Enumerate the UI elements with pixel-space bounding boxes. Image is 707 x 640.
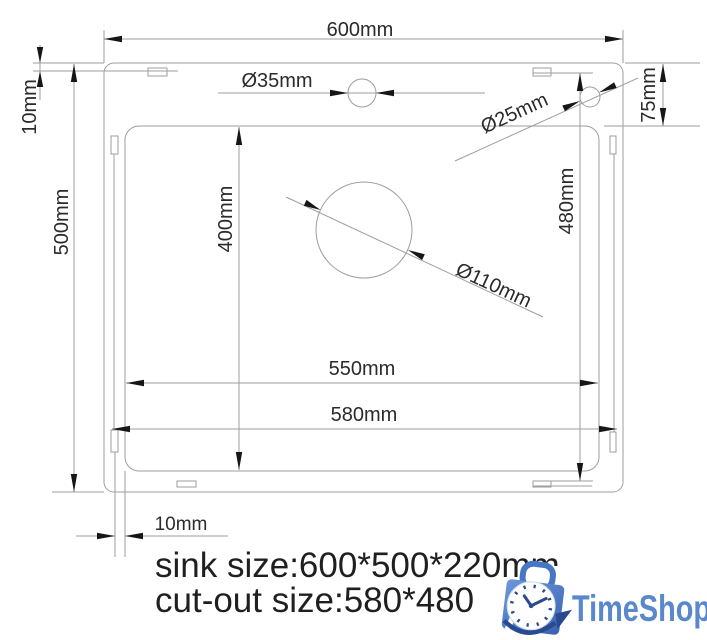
arrowhead-down [577,463,583,481]
arrowhead-left [125,533,143,539]
sink-size-note: sink size:600*500*220mm [155,546,560,585]
dim-width-600: 600mm [104,19,623,63]
arrowhead-left [376,90,394,96]
dimension-line [533,73,593,481]
dim-height-500-label: 500mm [51,189,73,256]
clip-tab-right-lower [610,432,616,452]
dim-width-600-label: 600mm [327,19,394,41]
arrowhead-down [660,108,666,126]
dim-bowl-400-label: 400mm [215,186,237,253]
dim-flange-bottom-10: 10mm [76,452,228,557]
arrowhead-up [660,64,666,82]
arrowhead-downleft [599,82,617,92]
brand-name: TimeShop [572,589,707,630]
drawing-svg: 600mm 10mm 500mm 400mm Ø35mm Ø25mm 75mm [0,0,707,640]
sink-technical-drawing: 600mm 10mm 500mm 400mm Ø35mm Ø25mm 75mm [0,0,707,640]
dim-cutout-580-label: 580mm [331,404,398,426]
clip-tab-bottom-left [177,481,196,487]
cutout-size-note: cut-out size:580*480 [155,581,474,620]
dim-flange-top-10-label: 10mm [19,79,41,135]
dim-accessory-hole-25-label: Ø25mm [478,89,552,139]
dim-bowl-550-label: 550mm [329,358,396,380]
arrowhead-left [104,36,122,42]
dim-drain-110-label: Ø110mm [452,259,535,313]
dim-bowl-400: 400mm [215,127,242,470]
dim-flange-top-10: 10mm [19,45,178,135]
arrowhead-right [97,533,115,539]
timeshop-logo: TimeShop [501,561,707,640]
dim-cutout-580: 580mm [112,404,617,432]
dim-offset-75: 75mm [604,63,700,126]
dimension-line [52,64,104,492]
dim-height-500: 500mm [51,64,104,492]
clip-tab-right-upper [610,136,616,154]
dim-bowl-550: 550mm [126,358,598,386]
clip-tab-top-left [148,68,167,76]
clip-tab-left-lower [111,430,118,452]
arrowhead-up [577,73,583,91]
drain-hole-circle [316,182,412,278]
clip-tab-top-right [533,68,551,76]
arrowhead-left [126,380,144,386]
dim-faucet-hole-35-label: Ø35mm [241,70,312,92]
arrowhead-downright [304,200,321,210]
dim-flange-bottom-10-label: 10mm [155,514,208,535]
arrowhead-up [236,127,242,145]
spec-notes: sink size:600*500*220mm cut-out size:580… [155,546,560,620]
dim-cutout-480-label: 480mm [556,168,578,235]
arrowhead-down [71,474,77,492]
arrowhead-up [71,64,77,82]
dimension-line [76,452,228,557]
arrowhead-right [330,90,348,96]
dim-offset-75-label: 75mm [638,67,660,123]
arrowhead-right [580,380,598,386]
arrowhead-upright [562,101,580,111]
dim-cutout-480: 480mm [533,73,593,481]
arrowhead-down [236,452,242,470]
arrowhead-right [605,36,623,42]
arrowhead-down [37,47,43,63]
clip-tab-left-upper [111,136,118,154]
